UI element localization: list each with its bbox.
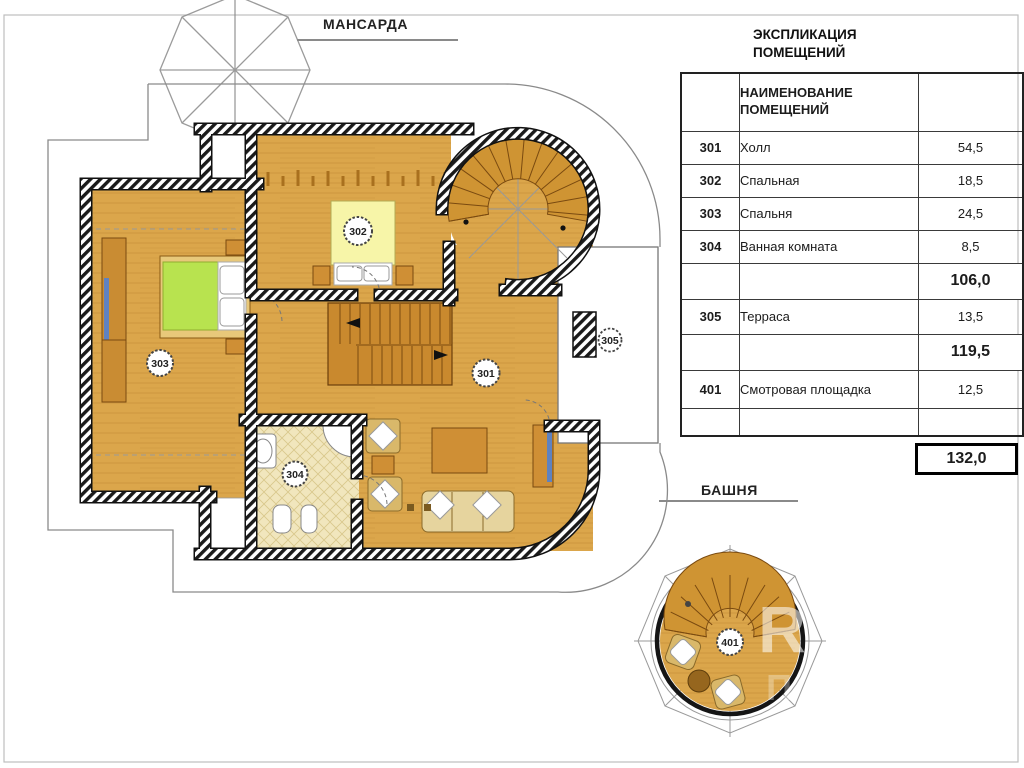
svg-text:303: 303 xyxy=(151,358,169,370)
floorplan-sheet: R П 301 302 303 304 305 xyxy=(0,0,1024,768)
room-name: Смотровая площадка xyxy=(740,370,919,408)
nightstand xyxy=(226,240,246,255)
room-area: 18,5 xyxy=(919,164,1024,197)
watermark: R П xyxy=(758,592,806,708)
legend-title: ЭКСПЛИКАЦИЯ ПОМЕЩЕНИЙ xyxy=(753,26,857,62)
pillow xyxy=(364,266,389,281)
svg-text:302: 302 xyxy=(349,226,367,238)
table-row: 301 Холл 54,5 xyxy=(681,131,1023,164)
room-number: 304 xyxy=(681,230,740,263)
side-table xyxy=(372,456,394,474)
legend-title-line1: ЭКСПЛИКАЦИЯ xyxy=(753,26,857,44)
table-row: 401 Смотровая площадка 12,5 xyxy=(681,370,1023,408)
room-name: Ванная комната xyxy=(740,230,919,263)
grand-total-box: 132,0 xyxy=(915,443,1018,475)
room-number: 303 xyxy=(681,197,740,230)
table-row: 304 Ванная комната 8,5 xyxy=(681,230,1023,263)
header-area-cell xyxy=(919,73,1024,131)
room-label-305: 305 xyxy=(599,329,622,352)
svg-text:401: 401 xyxy=(721,637,739,649)
nightstand xyxy=(396,266,413,285)
subtotal-row: 119,5 xyxy=(681,334,1023,370)
mansarda-title: МАНСАРДА xyxy=(323,16,408,32)
room-area: 54,5 xyxy=(919,131,1024,164)
room-label-401: 401 xyxy=(717,629,743,655)
room-name: Холл xyxy=(740,131,919,164)
pillow xyxy=(220,266,244,294)
bashnya-title: БАШНЯ xyxy=(701,482,758,498)
bidet xyxy=(301,505,317,533)
table xyxy=(432,428,487,473)
main-stair xyxy=(328,303,452,385)
room-label-304: 304 xyxy=(283,462,308,487)
header-num-cell xyxy=(681,73,740,131)
room-number: 302 xyxy=(681,164,740,197)
header-name-line1: НАИМЕНОВАНИЕ xyxy=(740,85,918,102)
svg-text:R: R xyxy=(758,592,806,666)
subtotal-row: 106,0 xyxy=(681,263,1023,299)
subtotal-first: 106,0 xyxy=(919,263,1024,299)
nightstand xyxy=(313,266,330,285)
bed-mattress xyxy=(163,262,218,330)
toilet xyxy=(273,505,291,533)
svg-text:305: 305 xyxy=(601,335,619,347)
svg-text:304: 304 xyxy=(286,469,304,481)
nightstand xyxy=(226,339,246,354)
explication-table: НАИМЕНОВАНИЕ ПОМЕЩЕНИЙ 301 Холл 54,5 302… xyxy=(680,72,1021,437)
room-area: 8,5 xyxy=(919,230,1024,263)
svg-text:301: 301 xyxy=(477,368,495,380)
legend-title-line2: ПОМЕЩЕНИЙ xyxy=(753,44,857,62)
bashnya-underline xyxy=(659,500,798,502)
table-header-row: НАИМЕНОВАНИЕ ПОМЕЩЕНИЙ xyxy=(681,73,1023,131)
pillow xyxy=(337,266,362,281)
pillow xyxy=(220,298,244,326)
table-row: 302 Спальная 18,5 xyxy=(681,164,1023,197)
table-row: 305 Терраса 13,5 xyxy=(681,299,1023,334)
room-label-302: 302 xyxy=(344,217,372,245)
empty-row xyxy=(681,408,1023,436)
header-name-line2: ПОМЕЩЕНИЙ xyxy=(740,102,918,119)
svg-text:П: П xyxy=(766,667,792,708)
room-number: 305 xyxy=(681,299,740,334)
cabinet-glass xyxy=(547,429,552,482)
room-label-301: 301 xyxy=(473,360,500,387)
room-area: 13,5 xyxy=(919,299,1024,334)
wardrobe-mirror xyxy=(104,278,109,340)
room-number: 301 xyxy=(681,131,740,164)
table-row: 303 Спальня 24,5 xyxy=(681,197,1023,230)
room-name: Терраса xyxy=(740,299,919,334)
room-name: Спальня xyxy=(740,197,919,230)
room-area: 12,5 xyxy=(919,370,1024,408)
room-number: 401 xyxy=(681,370,740,408)
mansarda-underline xyxy=(297,39,458,41)
round-table xyxy=(688,670,710,692)
header-name-cell: НАИМЕНОВАНИЕ ПОМЕЩЕНИЙ xyxy=(740,73,919,131)
subtotal-second: 119,5 xyxy=(919,334,1024,370)
terrace-marker xyxy=(573,312,596,357)
room-area: 24,5 xyxy=(919,197,1024,230)
room-name: Спальная xyxy=(740,164,919,197)
room-label-303: 303 xyxy=(147,350,173,376)
